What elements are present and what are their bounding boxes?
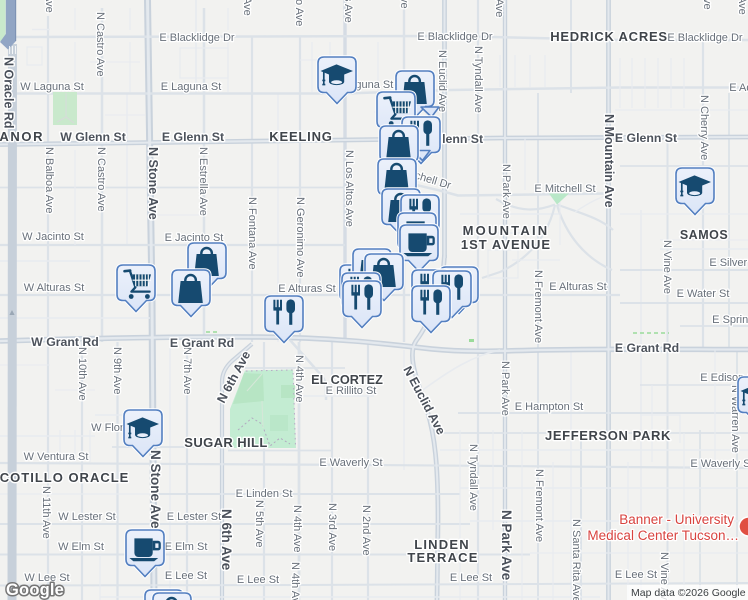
svg-text:W Lester St: W Lester St <box>58 511 115 523</box>
svg-text:OCOTILLO ORACLE: OCOTILLO ORACLE <box>0 470 129 485</box>
svg-text:E Grant Rd: E Grant Rd <box>170 336 234 350</box>
svg-text:E Lee St: E Lee St <box>450 572 492 584</box>
svg-text:N Cherry Ave: N Cherry Ave <box>698 95 710 160</box>
svg-text:E Alturas St: E Alturas St <box>278 283 335 295</box>
svg-text:W Alturas St: W Alturas St <box>24 282 85 294</box>
svg-text:N 5th Ave: N 5th Ave <box>253 500 265 548</box>
svg-text:W Glenn St: W Glenn St <box>60 130 126 144</box>
svg-text:E Linden St: E Linden St <box>236 488 293 500</box>
svg-text:N 7th Ave: N 7th Ave <box>181 347 193 395</box>
svg-text:N Park Ave: N Park Ave <box>500 164 512 219</box>
svg-text:N Park Ave: N Park Ave <box>499 361 511 416</box>
svg-text:N Tyndall Ave: N Tyndall Ave <box>472 46 484 113</box>
svg-text:N 4th Ave: N 4th Ave <box>289 562 301 600</box>
svg-text:N 11th Ave: N 11th Ave <box>40 486 52 539</box>
svg-text:N 6th Ave: N 6th Ave <box>219 509 234 571</box>
svg-text:SUGAR HILL: SUGAR HILL <box>184 435 267 450</box>
svg-text:Map data ©2026 Google: Map data ©2026 Google <box>631 587 746 599</box>
svg-text:N Oracle Rd: N Oracle Rd <box>2 57 16 129</box>
svg-text:E Elm St: E Elm St <box>165 541 208 553</box>
svg-text:E Grant Rd: E Grant Rd <box>615 341 679 355</box>
svg-text:MOUNTAIN: MOUNTAIN <box>463 223 550 238</box>
svg-text:W Grant Rd: W Grant Rd <box>31 335 99 349</box>
svg-text:N 2nd Ave: N 2nd Ave <box>360 505 372 556</box>
svg-text:N Euclid Ave: N Euclid Ave <box>436 50 448 112</box>
svg-text:N Mountain Ave: N Mountain Ave <box>602 114 616 208</box>
svg-text:N 10th Ave: N 10th Ave <box>76 347 88 401</box>
svg-text:W Jacinto St: W Jacinto St <box>22 231 84 243</box>
svg-text:s Ave: s Ave <box>736 0 748 15</box>
svg-text:KEELING: KEELING <box>269 129 332 144</box>
svg-text:W Ventura St: W Ventura St <box>24 451 89 463</box>
svg-text:E Lester St: E Lester St <box>167 511 221 523</box>
svg-text:MANOR: MANOR <box>0 129 44 144</box>
svg-text:E Spring St: E Spring St <box>712 314 748 326</box>
svg-text:N 4th Ave: N 4th Ave <box>293 355 305 403</box>
svg-text:1ST AVENUE: 1ST AVENUE <box>461 237 551 252</box>
svg-text:N Geronimo Ave: N Geronimo Ave <box>294 197 306 278</box>
svg-text:o Ave: o Ave <box>293 0 305 26</box>
svg-text:E Water St: E Water St <box>677 288 730 300</box>
svg-text:E Waverly St: E Waverly St <box>319 457 382 469</box>
svg-text:E Lee St: E Lee St <box>237 574 279 586</box>
svg-text:N Stone Ave: N Stone Ave <box>146 147 160 220</box>
svg-text:N Estrella Ave: N Estrella Ave <box>197 147 209 216</box>
svg-text:N Tyndall Ave: N Tyndall Ave <box>467 444 479 511</box>
svg-text:N Los Altos Ave: N Los Altos Ave <box>343 150 355 227</box>
svg-text:N Park Ave: N Park Ave <box>499 510 514 581</box>
svg-text:Medical Center Tucson…: Medical Center Tucson… <box>587 528 739 543</box>
svg-text:E Blacklidge Dr: E Blacklidge Dr <box>417 31 493 43</box>
svg-text:TERRACE: TERRACE <box>407 550 478 565</box>
svg-text:N 9th Ave: N 9th Ave <box>111 347 123 395</box>
svg-text:E Blacklidge Dr: E Blacklidge Dr <box>159 32 235 44</box>
svg-text:d Ave: d Ave <box>493 0 505 17</box>
svg-text:Ave: Ave <box>43 0 55 13</box>
svg-text:N Fremont Ave: N Fremont Ave <box>533 469 545 542</box>
svg-text:E Adams St: E Adams St <box>729 82 748 94</box>
svg-text:W Elm St: W Elm St <box>58 541 104 553</box>
svg-text:W Laguna St: W Laguna St <box>20 81 84 93</box>
svg-text:N Santa Rita Ave: N Santa Rita Ave <box>570 519 582 600</box>
svg-text:ve: ve <box>398 0 410 9</box>
svg-text:HEDRICK ACRES: HEDRICK ACRES <box>550 29 668 44</box>
svg-text:E Glenn St: E Glenn St <box>162 130 224 144</box>
svg-text:N Fremont Ave: N Fremont Ave <box>532 270 544 343</box>
svg-text:N Fontana Ave: N Fontana Ave <box>246 197 258 270</box>
svg-text:s Ave: s Ave <box>342 0 354 23</box>
svg-text:N Stone Ave: N Stone Ave <box>148 450 163 529</box>
svg-text:Ave: Ave <box>241 0 253 16</box>
svg-text:N 3rd Ave: N 3rd Ave <box>326 503 338 551</box>
svg-text:N 4th Ave: N 4th Ave <box>291 505 303 553</box>
svg-text:Banner - University: Banner - University <box>619 512 734 527</box>
svg-text:E Alturas St: E Alturas St <box>549 281 606 293</box>
svg-text:ve: ve <box>701 0 713 10</box>
svg-text:E Silver St: E Silver St <box>709 257 748 269</box>
svg-text:N Balboa Ave: N Balboa Ave <box>43 147 55 213</box>
svg-text:E Hampton St: E Hampton St <box>515 401 583 413</box>
svg-text:JEFFERSON PARK: JEFFERSON PARK <box>545 428 671 443</box>
svg-text:E Waverly St: E Waverly St <box>690 458 748 470</box>
svg-text:EL CORTEZ: EL CORTEZ <box>311 373 383 387</box>
svg-text:SAMOS: SAMOS <box>680 228 728 242</box>
svg-text:E Lee St: E Lee St <box>165 570 207 582</box>
svg-text:E Glenn St: E Glenn St <box>615 131 677 145</box>
svg-text:E Blacklidge Dr: E Blacklidge Dr <box>667 32 743 44</box>
svg-text:N Vine Ave: N Vine Ave <box>661 240 673 294</box>
svg-text:E Mitchell St: E Mitchell St <box>534 183 595 195</box>
svg-text:N Castro Ave: N Castro Ave <box>94 12 106 77</box>
svg-text:Google: Google <box>6 581 64 599</box>
svg-text:N Castro Ave: N Castro Ave <box>95 147 107 212</box>
svg-text:E Lee St: E Lee St <box>615 569 657 581</box>
svg-text:E Laguna St: E Laguna St <box>161 81 222 93</box>
